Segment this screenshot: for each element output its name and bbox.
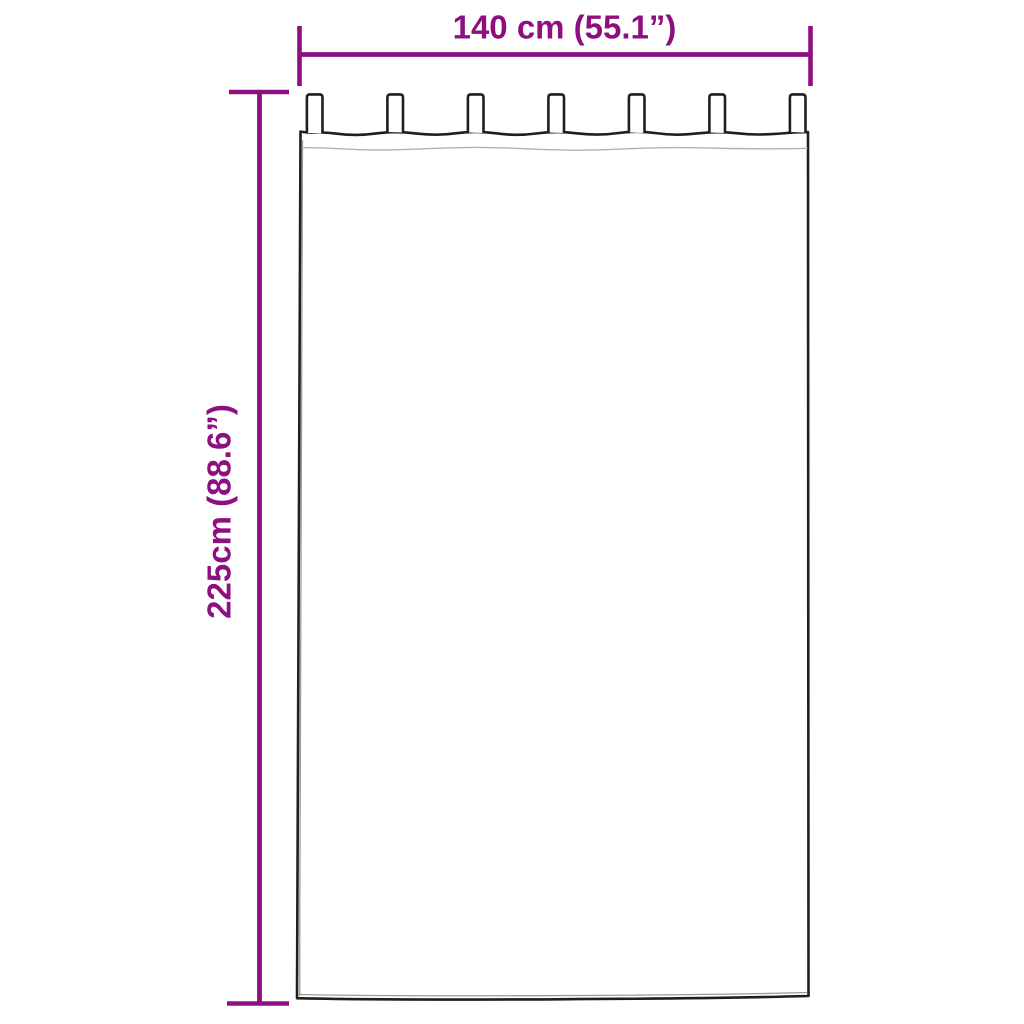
svg-text:225cm (88.6”): 225cm (88.6”) — [201, 404, 238, 619]
svg-text:140 cm (55.1”): 140 cm (55.1”) — [453, 9, 677, 46]
